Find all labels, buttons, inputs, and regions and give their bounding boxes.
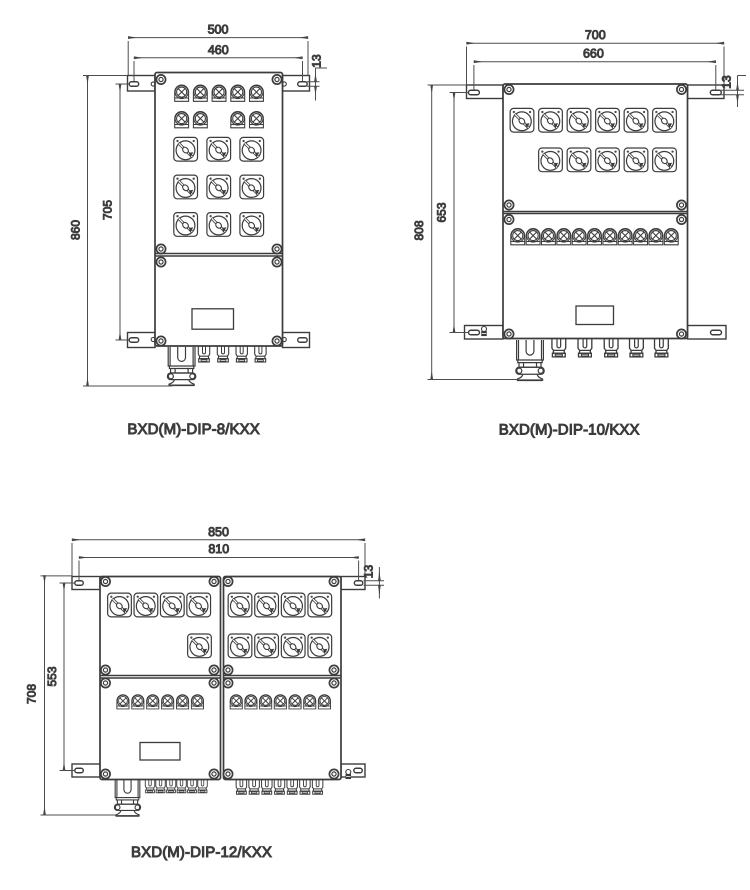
svg-text:810: 810: [208, 542, 229, 556]
svg-text:460: 460: [208, 43, 229, 57]
svg-text:13: 13: [310, 54, 324, 68]
svg-text:850: 850: [208, 525, 229, 539]
svg-text:660: 660: [583, 47, 604, 61]
svg-text:708: 708: [25, 684, 39, 704]
svg-text:13: 13: [362, 565, 376, 579]
svg-text:705: 705: [101, 200, 115, 220]
svg-text:553: 553: [45, 666, 59, 686]
svg-text:653: 653: [435, 202, 449, 222]
svg-text:BXD(M)-DIP-8/KXX: BXD(M)-DIP-8/KXX: [127, 421, 259, 438]
svg-text:500: 500: [208, 23, 229, 37]
svg-text:13: 13: [720, 75, 734, 89]
svg-text:700: 700: [585, 28, 606, 42]
svg-text:BXD(M)-DIP-12/KXX: BXD(M)-DIP-12/KXX: [131, 844, 272, 861]
svg-text:860: 860: [69, 220, 83, 240]
svg-text:808: 808: [412, 220, 426, 240]
svg-text:BXD(M)-DIP-10/KXX: BXD(M)-DIP-10/KXX: [499, 422, 640, 439]
